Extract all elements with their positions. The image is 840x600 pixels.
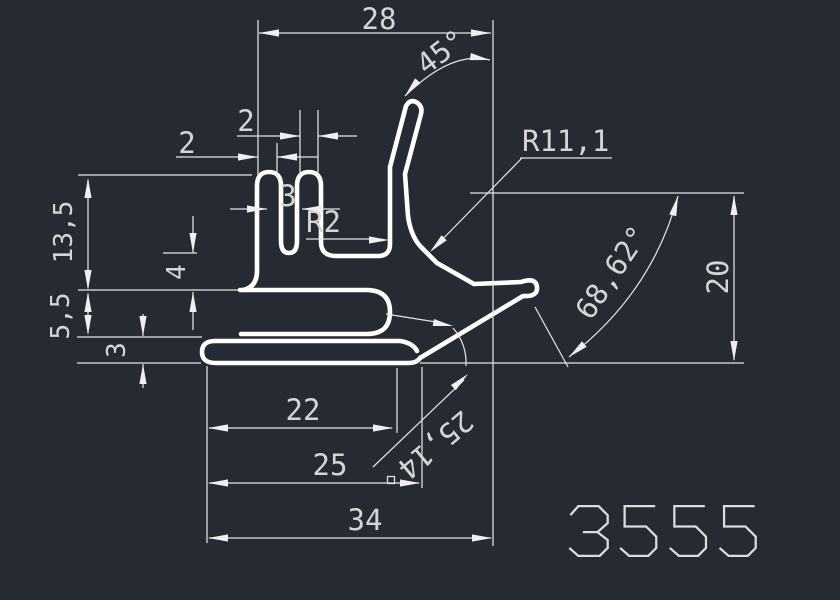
arrow-20-top [730, 195, 737, 215]
arrow-45-tip [405, 78, 421, 96]
arrow-lip-leader [433, 319, 453, 326]
arrow-2b-left [318, 132, 338, 139]
arrow-4-down [189, 233, 196, 253]
arrow-68-top [669, 196, 678, 216]
dim-r11-label: R11,1 [522, 124, 609, 158]
dim-45-label: 45° [410, 23, 472, 82]
arrow-34-left [208, 534, 228, 541]
arrow-2b-right [280, 132, 300, 139]
arrow-20-bot [730, 341, 737, 361]
arrow-25-14 [451, 374, 468, 390]
profile-outline [202, 101, 537, 363]
dim-5-5-label: 5,5 [46, 293, 76, 340]
arrow-4-up [189, 292, 196, 312]
arrow-13-5-bot [84, 270, 91, 290]
drawing-number-digit [569, 506, 607, 556]
arrow-r2 [369, 236, 389, 243]
profile-main-path [202, 101, 537, 363]
dimension-texts: 28 45° R11,1 2 2 3 R2 13,5 4 5,5 3 20 68… [46, 2, 735, 537]
dim-34-label: 34 [348, 503, 383, 537]
arrow-2a-left [277, 153, 297, 160]
arrow-28-left [259, 29, 279, 36]
dim-68-label: 68,62° [568, 219, 655, 325]
arrow-13-5-top [84, 178, 91, 198]
dim-4-label: 4 [162, 264, 192, 280]
drawing-number-digit [620, 506, 656, 556]
cad-drawing: 28 45° R11,1 2 2 3 R2 13,5 4 5,5 3 20 68… [0, 0, 840, 600]
dim-22-label: 22 [286, 393, 321, 427]
arrow-45-ext [470, 53, 490, 60]
drawing-number [569, 506, 755, 556]
cad-canvas[interactable]: 28 45° R11,1 2 2 3 R2 13,5 4 5,5 3 20 68… [0, 0, 840, 600]
dim-28-label: 28 [362, 2, 397, 36]
profile-middle-arm-path [240, 290, 390, 334]
arrow-25-left [208, 479, 228, 486]
arrow-28-right [471, 29, 491, 36]
ext-leg-diagonal [535, 307, 568, 367]
leader-r11 [432, 158, 522, 250]
dim-20-label: 20 [701, 260, 735, 295]
leader-lip-top [386, 314, 436, 322]
arrow-68-low [569, 341, 587, 357]
dim-3L-label: 3 [102, 342, 132, 358]
arrow-34-right [472, 534, 492, 541]
dim-2b-label: 2 [237, 104, 254, 138]
arrow-5-5-top [84, 292, 91, 312]
dim-2a-label: 2 [178, 126, 195, 160]
dim-13-5-label: 13,5 [49, 201, 79, 264]
arrow-2a-right [238, 153, 258, 160]
drawing-number-digit [670, 506, 706, 556]
dim-3c-label: 3 [279, 179, 296, 213]
arrow-22-right [373, 424, 393, 431]
arrow-3L-up [139, 364, 146, 384]
arrow-5-5-bot [84, 315, 91, 335]
dim-25-14-label: 25,14 [391, 404, 480, 486]
arrow-3L-down [139, 316, 146, 336]
dim-25-label: 25 [313, 448, 348, 482]
arrow-22-left [208, 424, 228, 431]
drawing-number-digit [720, 506, 756, 556]
dim-r2-label: R2 [306, 205, 341, 239]
